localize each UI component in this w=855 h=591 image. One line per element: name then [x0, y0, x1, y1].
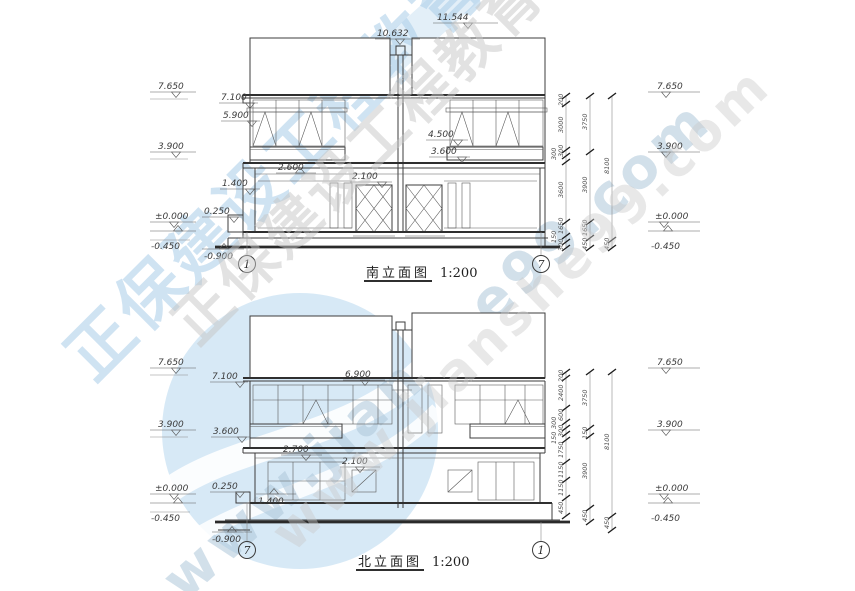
dim-seg: 2400 — [557, 384, 565, 401]
grid-bubble-7: 7 — [244, 544, 251, 557]
level-3900: 3.900 — [657, 420, 683, 430]
north-grid-line-7: 7 — [239, 503, 256, 559]
label-m900: -0.900 — [204, 252, 233, 262]
south-second-floor-windows — [247, 100, 547, 146]
label-7100: 7.100 — [221, 93, 247, 103]
north-levels-left: 7.650 3.900 ±0.000 -0.450 — [150, 358, 196, 524]
level-7650: 7.650 — [657, 358, 683, 368]
dim-seg: 1150 — [557, 479, 565, 496]
label-3600: 3.600 — [431, 147, 457, 157]
dim-seg: 3000 — [557, 116, 565, 133]
dim-seg: 300 — [557, 145, 565, 157]
north-dim-chain-outer: 8100 450 — [603, 369, 616, 533]
dim-seg: 200 — [557, 370, 565, 382]
south-base-plinth — [215, 168, 560, 247]
label-2100: 2.100 — [352, 172, 378, 182]
dim-seg: 3900 — [581, 462, 589, 479]
north-title-block: 北立面图 1:200 — [356, 555, 469, 570]
south-dim-chain-inner: 200 3000 300 300 3600 1650 150 300 — [550, 93, 570, 251]
south-balcony-railings — [250, 147, 543, 160]
level-0000: ±0.000 — [655, 212, 689, 222]
level-0000: ±0.000 — [155, 484, 189, 494]
dim-seg: 600 — [557, 409, 565, 421]
north-massing — [243, 313, 545, 508]
label-m900: -0.900 — [212, 535, 241, 545]
label-1400: 1.400 — [258, 497, 284, 507]
north-grid-line-1: 1 — [533, 522, 550, 559]
south-scale: 1:200 — [440, 266, 477, 281]
dim-seg: 450 — [603, 517, 611, 529]
north-dim-chain-inner: 200 2400 600 300 300 150 1750 1150 1150 … — [550, 369, 570, 519]
level-7650: 7.650 — [158, 358, 184, 368]
label-7100: 7.100 — [212, 372, 238, 382]
north-elevation: 7 1 北立面图 1:200 7.650 3.900 ±0.000 — [150, 313, 700, 570]
level-7650: 7.650 — [657, 82, 683, 92]
level-3900: 3.900 — [158, 420, 184, 430]
dim-seg: 450 — [581, 238, 589, 250]
dim-seg: 300 — [557, 425, 565, 437]
dim-seg: 300 — [550, 148, 558, 160]
level-0000: ±0.000 — [655, 484, 689, 494]
label-3600: 3.600 — [213, 427, 239, 437]
elevation-drawing: 1 7 南立面图 1:200 10.632 11.544 7.650 — [0, 0, 855, 591]
dim-seg: 450 — [603, 238, 611, 250]
level-3900: 3.900 — [158, 142, 184, 152]
dim-seg: 200 — [557, 94, 565, 106]
dim-seg: 3600 — [557, 181, 565, 198]
label-4500: 4.500 — [428, 130, 454, 140]
north-scale: 1:200 — [432, 555, 469, 570]
dim-11544: 11.544 — [437, 13, 469, 23]
dim-10632: 10.632 — [377, 29, 409, 39]
north-levels-right: 7.650 3.900 ±0.000 -0.450 — [648, 358, 700, 524]
dim-seg: 150 — [581, 427, 589, 439]
south-title-block: 南立面图 1:200 — [364, 265, 477, 281]
dim-seg: 1750 — [557, 441, 565, 458]
level-3900: 3.900 — [657, 142, 683, 152]
south-dim-chain-outer: 8100 450 — [603, 93, 616, 251]
label-0250: 0.250 — [204, 207, 230, 217]
dim-seg: 3750 — [581, 389, 589, 406]
grid-bubble-1: 1 — [244, 258, 251, 271]
north-title: 北立面图 — [358, 555, 422, 570]
dim-seg: 3900 — [581, 176, 589, 193]
south-entrance-doors — [350, 185, 448, 236]
label-5900: 5.900 — [223, 111, 249, 121]
level-7650: 7.650 — [158, 82, 184, 92]
level-0000: ±0.000 — [155, 212, 189, 222]
south-elevation: 1 7 南立面图 1:200 10.632 11.544 7.650 — [150, 13, 700, 281]
south-facade-labels: 7.100 5.900 4.500 3.600 2.600 2.100 1.40… — [202, 93, 470, 262]
level-m450: -0.450 — [651, 242, 680, 252]
grid-bubble-1: 1 — [538, 544, 545, 557]
south-dim-chain-middle: 3750 3900 1650 450 — [581, 93, 594, 251]
drawing-sheet: 正保建设工程教育网 www.jianshe99.com — [0, 0, 855, 591]
dim-seg: 1650 — [557, 217, 565, 234]
label-2700: 2.700 — [283, 445, 309, 455]
south-title: 南立面图 — [366, 265, 430, 281]
north-facade-labels: 7.100 6.900 3.600 2.700 2.100 1.400 0.25… — [210, 370, 385, 545]
grid-bubble-7: 7 — [538, 258, 545, 271]
level-m450: -0.450 — [151, 514, 180, 524]
label-2100: 2.100 — [342, 457, 368, 467]
dim-seg: 1650 — [581, 219, 589, 236]
dim-seg: 3750 — [581, 113, 589, 130]
dim-seg: 1150 — [557, 461, 565, 478]
south-levels-right: 7.650 3.900 ±0.000 -0.450 — [648, 82, 700, 252]
south-levels-left: 7.650 3.900 ±0.000 -0.450 — [150, 82, 196, 252]
dim-seg: 450 — [557, 502, 565, 514]
level-m450: -0.450 — [651, 514, 680, 524]
label-1400: 1.400 — [222, 179, 248, 189]
label-0250: 0.250 — [212, 482, 238, 492]
dim-seg: 8100 — [603, 157, 611, 174]
dim-seg: 450 — [581, 510, 589, 522]
north-dim-chain-middle: 3750 150 3900 450 — [581, 369, 594, 525]
level-m450: -0.450 — [151, 242, 180, 252]
label-6900: 6.900 — [345, 370, 371, 380]
dim-seg: 300 — [557, 239, 565, 251]
dim-seg: 8100 — [603, 433, 611, 450]
